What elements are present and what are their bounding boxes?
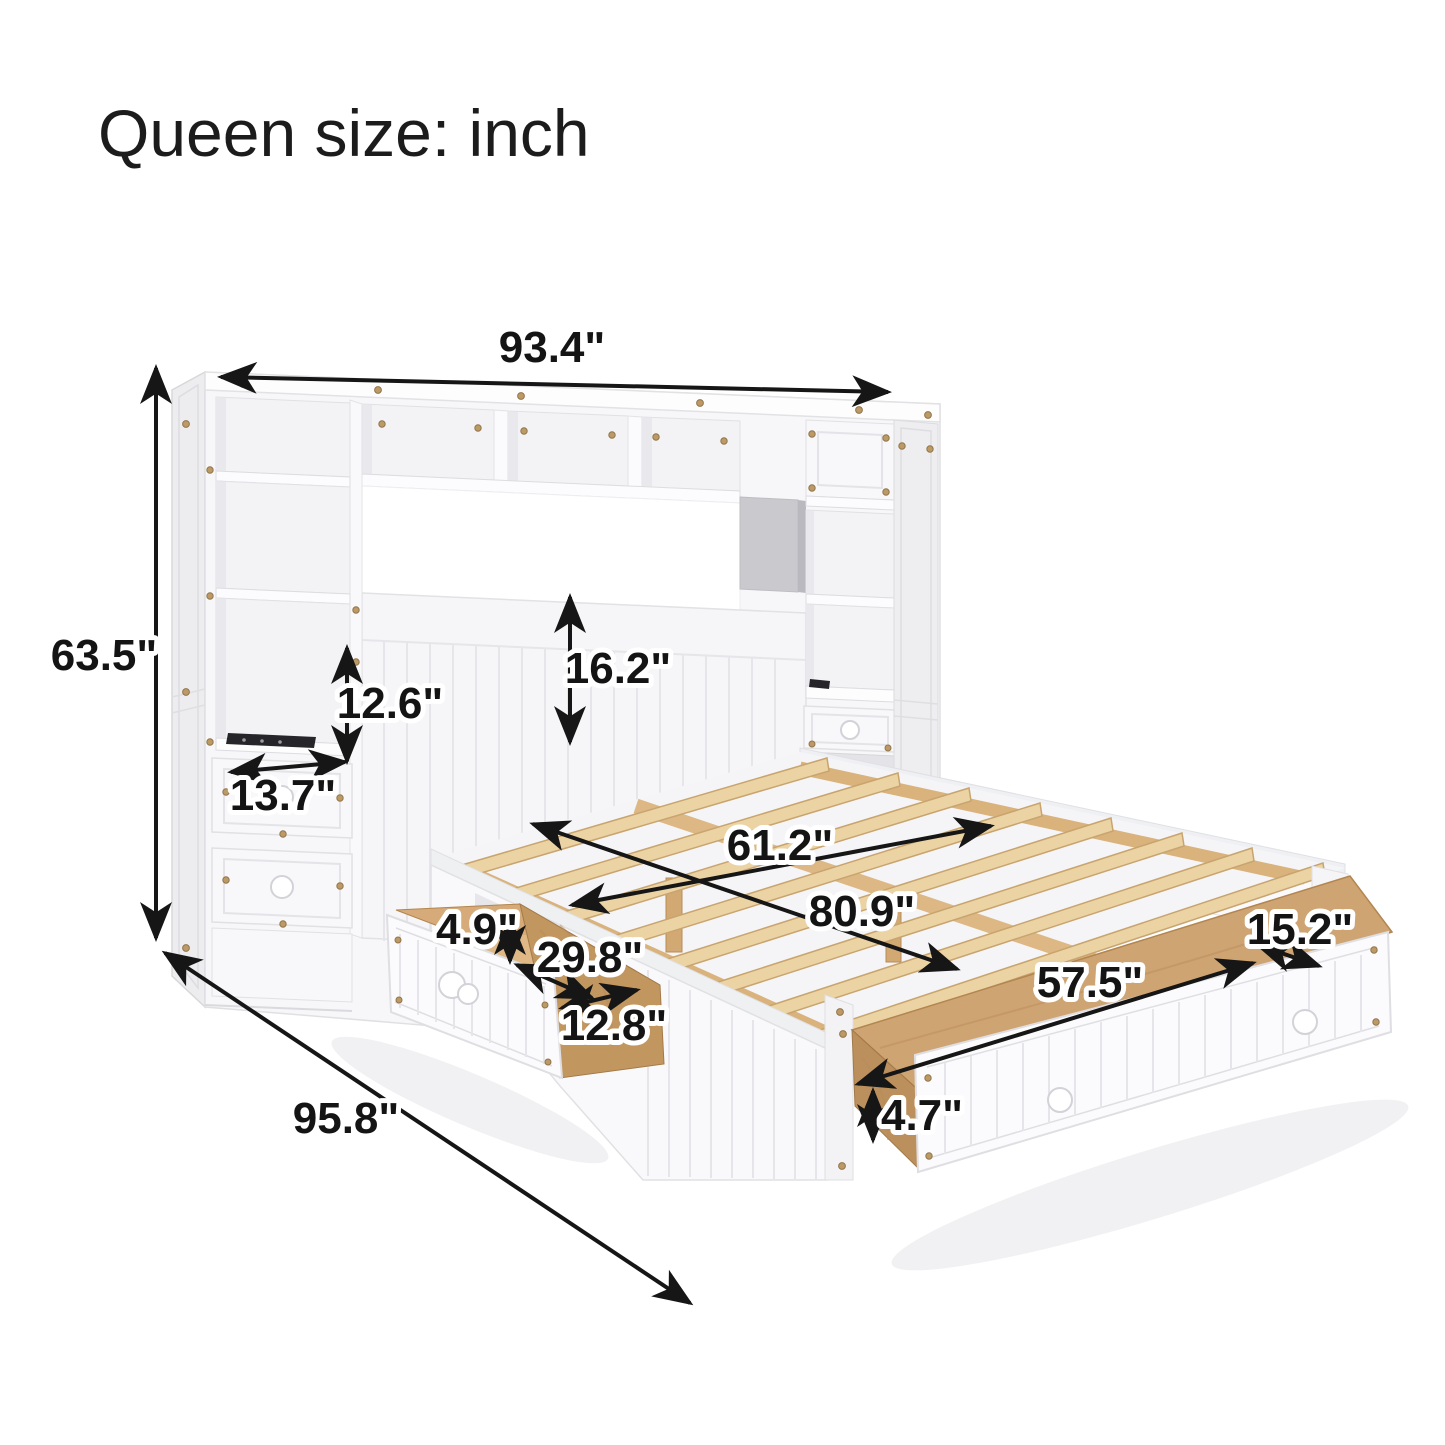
drawer-knob bbox=[1293, 1010, 1317, 1034]
foot-drawer-length-label: 57.5" bbox=[1037, 958, 1144, 1007]
drawer-knob bbox=[271, 876, 293, 898]
shelf-opening bbox=[216, 481, 350, 594]
headboard-open-space bbox=[362, 486, 740, 610]
drawer-knob bbox=[1048, 1088, 1072, 1112]
shelf-opening bbox=[216, 397, 350, 477]
side-drawer-height-label: 4.9" bbox=[436, 905, 518, 954]
left-tower-base bbox=[212, 928, 352, 1002]
left-tower bbox=[205, 397, 352, 1011]
side-drawer-width-label: 12.8" bbox=[561, 1001, 668, 1050]
cubby-divider bbox=[628, 416, 642, 487]
foot-drawer-depth-label: 15.2" bbox=[1247, 905, 1354, 954]
overall-height-label: 63.5" bbox=[51, 631, 158, 680]
cubby-opening bbox=[642, 417, 740, 491]
foot-left-post bbox=[825, 995, 853, 1180]
drawer-knob bbox=[841, 721, 859, 739]
foot-drawer-height-label: 4.7" bbox=[881, 1091, 963, 1140]
left-tower-drawer-bottom bbox=[212, 848, 352, 928]
cubby-divider bbox=[494, 410, 508, 481]
shelf-opening bbox=[216, 598, 350, 744]
shelf-opening-height-label: 12.6" bbox=[337, 679, 444, 728]
nightstand-depth-label: 13.7" bbox=[230, 771, 337, 820]
right-tower-drawer bbox=[804, 706, 896, 752]
cubby-opening bbox=[362, 404, 494, 480]
shelf-opening bbox=[806, 604, 894, 690]
overall-depth-label: 95.8" bbox=[293, 1094, 400, 1143]
dimension-diagram: 93.4" 63.5" 95.8" 12.6" 16.2" 13.7" 61.2… bbox=[0, 0, 1445, 1445]
headboard-height-label: 16.2" bbox=[565, 644, 672, 693]
drawer-knob bbox=[458, 984, 478, 1004]
side-drawer-depth-label: 29.8" bbox=[537, 933, 644, 982]
overall-width-label: 93.4" bbox=[499, 323, 606, 372]
bed-length-label: 80.9" bbox=[809, 887, 916, 936]
shelf-opening bbox=[806, 510, 894, 598]
cubby-opening bbox=[508, 411, 628, 486]
bed-width-label: 61.2" bbox=[727, 821, 834, 870]
open-back-cubby bbox=[740, 497, 798, 592]
page-title: Queen size: inch bbox=[98, 96, 590, 170]
diagram-canvas: 93.4" 63.5" 95.8" 12.6" 16.2" 13.7" 61.2… bbox=[0, 0, 1445, 1445]
